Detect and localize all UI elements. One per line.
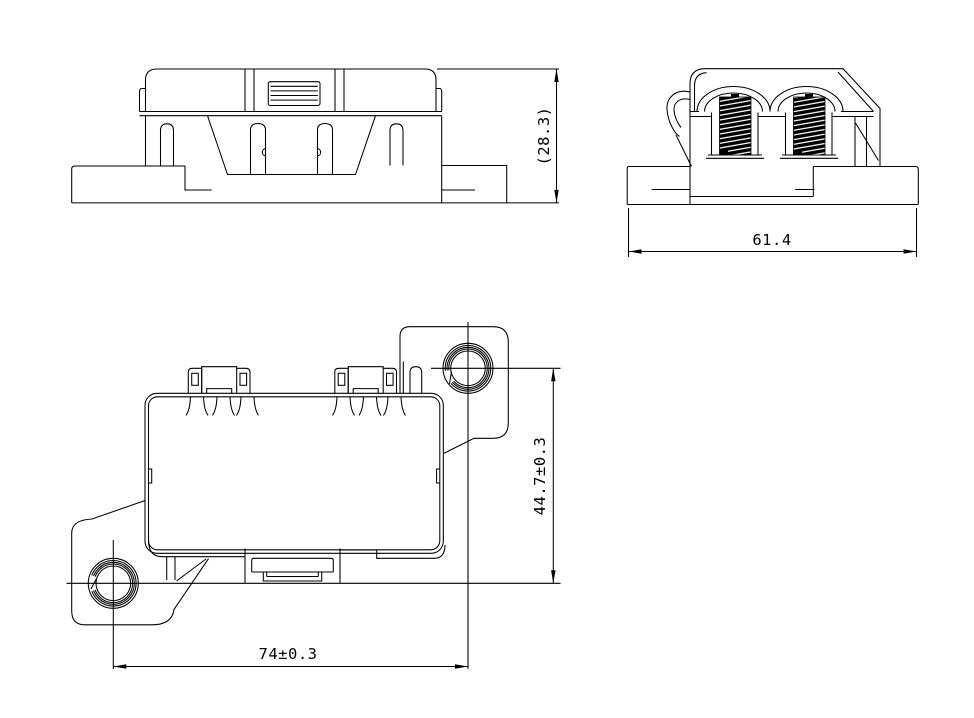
terminal-tab-right <box>335 367 397 394</box>
side-view-tower <box>855 117 879 167</box>
top-view-body <box>145 393 443 553</box>
top-view: 44.7±0.3 74±0.3 <box>67 322 561 669</box>
arrow-down-icon <box>551 570 555 583</box>
coil-spring-right <box>794 94 826 155</box>
front-view: (28.3) <box>72 69 559 203</box>
side-view-clip <box>667 91 692 166</box>
mount-flange-top-right <box>400 327 508 454</box>
arrow-down-icon <box>554 190 558 203</box>
mount-flange-bottom-left <box>72 501 245 625</box>
arrow-up-icon <box>551 368 555 381</box>
terminal-tab-left <box>188 367 250 394</box>
arrow-left-icon <box>629 249 642 253</box>
arrow-right-icon <box>455 664 468 668</box>
arrow-up-icon <box>554 69 558 82</box>
drawing-canvas: (28.3) <box>0 0 974 718</box>
side-view: 61.4 <box>627 69 918 257</box>
arrow-left-icon <box>113 664 126 668</box>
dim-label-side-width: 61.4 <box>752 231 791 249</box>
dim-label-front-height: (28.3) <box>535 107 553 166</box>
top-view-clip <box>410 367 422 394</box>
dim-side-width: 61.4 <box>629 208 917 257</box>
dim-front-height: (28.3) <box>437 69 559 203</box>
front-view-cap <box>140 69 442 112</box>
front-view-grip-ribs <box>268 82 320 106</box>
top-view-base-step <box>340 545 445 558</box>
dim-label-top-height: 44.7±0.3 <box>531 437 549 516</box>
dim-label-top-width: 74±0.3 <box>259 645 318 663</box>
arrow-right-icon <box>904 249 917 253</box>
dim-top-height: 44.7±0.3 <box>531 368 556 583</box>
drawing-sheet: (28.3) <box>0 0 974 718</box>
dim-top-width: 74±0.3 <box>113 645 468 669</box>
coil-spring-left <box>720 94 752 155</box>
top-view-fingers <box>186 397 406 416</box>
